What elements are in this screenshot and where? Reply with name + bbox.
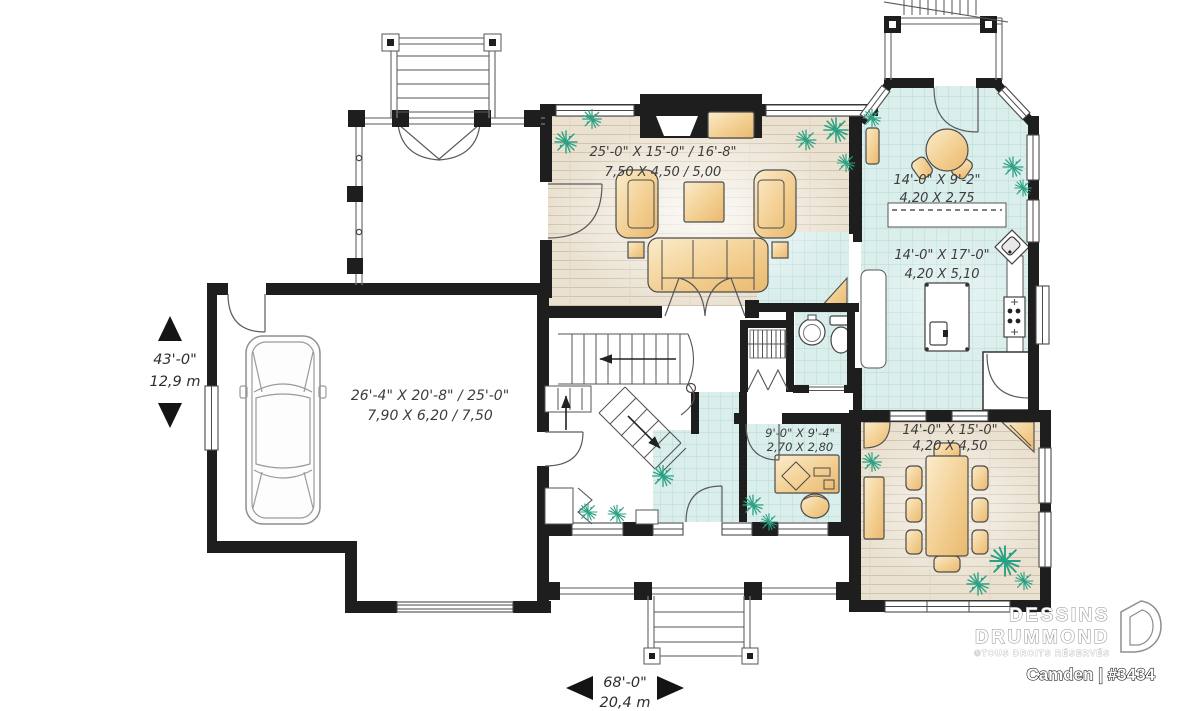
- plant-icon: [1003, 157, 1023, 177]
- rear-deck: [884, 0, 1008, 80]
- breakfast-label-imperial: 14'-0" X 9'-2": [893, 173, 980, 188]
- kitchen-label-imperial: 14'-0" X 17'-0": [894, 248, 989, 263]
- side-table-left: [628, 242, 644, 258]
- plant-icon: [863, 109, 881, 127]
- brand-name-line1: DESSINS: [1009, 605, 1110, 626]
- dining-interior-window-1: [890, 411, 926, 421]
- veranda-french-doors: [398, 124, 480, 160]
- plant-icon: [990, 546, 1020, 576]
- brand-d-icon: [1121, 601, 1161, 652]
- bar-counter: [861, 270, 886, 368]
- plant-icon: [555, 131, 577, 153]
- living-window-right: [766, 105, 866, 116]
- plant-icon: [796, 130, 816, 150]
- range-icon: [1004, 297, 1025, 337]
- brand-rights: ©TOUS DROITS RÉSERVÉS: [974, 648, 1110, 658]
- breakfast-counter: [888, 203, 1006, 227]
- plant-icon: [608, 505, 626, 523]
- coffee-table: [684, 182, 724, 222]
- plant-icon: [967, 573, 989, 595]
- front-porch: [542, 582, 854, 664]
- garage-door: [397, 602, 513, 612]
- plant-icon: [1015, 572, 1033, 590]
- stairs-to-upper: [558, 334, 696, 393]
- kitchen-label-metric: 4,20 X 5,10: [904, 267, 979, 282]
- breakfast-table: [926, 129, 968, 171]
- door-sidelight-right: [722, 523, 752, 535]
- plant-icon: [824, 118, 848, 142]
- kitchen-bay-window: [1036, 286, 1049, 344]
- dining-window-right-2: [1039, 512, 1051, 567]
- breakfast-label-metric: 4,20 X 2,75: [899, 191, 974, 206]
- powder-pocket-door: [809, 387, 844, 391]
- kitchen-side-window: [1027, 200, 1039, 242]
- width-metric: 20,4 m: [599, 695, 650, 711]
- desk-chair: [801, 494, 829, 518]
- plant-icon: [863, 453, 882, 472]
- dining-window-bottom: [885, 601, 1010, 612]
- porch-steps: [644, 596, 758, 664]
- floor-plan-page: 25'-0" X 15'-0" / 16'-8" 7,50 X 4,50 / 5…: [0, 0, 1200, 711]
- closet-bifold-door: [748, 370, 788, 390]
- floor-plan-canvas: 25'-0" X 15'-0" / 16'-8" 7,50 X 4,50 / 5…: [0, 0, 1200, 711]
- plan-name: Camden | #3434: [1026, 665, 1155, 684]
- sideboard: [864, 477, 884, 539]
- veranda-steps: [382, 34, 501, 118]
- plant-icon: [743, 495, 763, 515]
- plant-icon: [837, 154, 855, 172]
- arrow-left-icon: [566, 676, 593, 700]
- arrow-up-icon: [158, 316, 182, 341]
- island: [925, 283, 969, 351]
- garage-label-metric: 7,90 X 6,20 / 7,50: [367, 408, 493, 424]
- dining-label-metric: 4,20 X 4,50: [912, 439, 987, 454]
- plant-icon: [1015, 180, 1032, 197]
- plant-icon: [653, 466, 674, 487]
- desk: [775, 455, 839, 493]
- plant-icon: [579, 503, 597, 521]
- garage-window: [205, 386, 218, 450]
- dimension-height: 43'-0" 12,9 m: [149, 316, 200, 428]
- office-window: [778, 523, 828, 535]
- brand-name-line2: DRUMMOND: [975, 627, 1110, 648]
- dining-table: [926, 456, 968, 556]
- arrow-right-icon: [657, 676, 684, 700]
- living-room-label-metric: 7,50 X 4,50 / 5,00: [605, 165, 722, 180]
- sofa: [648, 238, 768, 292]
- living-room-label-imperial: 25'-0" X 15'-0" / 16'-8": [590, 145, 737, 160]
- side-table-right: [772, 242, 788, 258]
- office-label-metric: 2,70 X 2,80: [767, 440, 833, 454]
- hall-closet: [545, 488, 658, 524]
- porch-window-left: [572, 523, 623, 535]
- arrow-down-icon: [158, 403, 182, 428]
- plant-icon: [583, 110, 602, 129]
- dimension-width: 68'-0" 20,4 m: [566, 675, 684, 711]
- width-imperial: 68'-0": [603, 675, 647, 691]
- car: [240, 336, 326, 524]
- dining-window-right-1: [1039, 448, 1051, 503]
- garage-entry-door: [545, 432, 583, 466]
- height-imperial: 43'-0": [153, 352, 197, 368]
- closet-rod: [748, 330, 788, 358]
- dining-label-imperial: 14'-0" X 15'-0": [902, 423, 997, 438]
- garage-side-door: [228, 294, 265, 332]
- plant-icon: [761, 514, 778, 531]
- garage-entry-steps: [545, 386, 591, 430]
- planter-box: [866, 128, 879, 164]
- door-sidelight-left: [653, 523, 683, 535]
- pantry: [983, 352, 1032, 410]
- brand-logo: DESSINS DRUMMOND ©TOUS DROITS RÉSERVÉS C…: [974, 601, 1161, 684]
- garage-label-imperial: 26'-4" X 20'-8" / 25'-0": [351, 388, 509, 404]
- breakfast-side-window: [1027, 135, 1039, 180]
- dining-interior-window-2: [952, 411, 988, 421]
- height-metric: 12,9 m: [149, 374, 200, 390]
- office-label-imperial: 9'-0" X 9'-4": [765, 426, 835, 440]
